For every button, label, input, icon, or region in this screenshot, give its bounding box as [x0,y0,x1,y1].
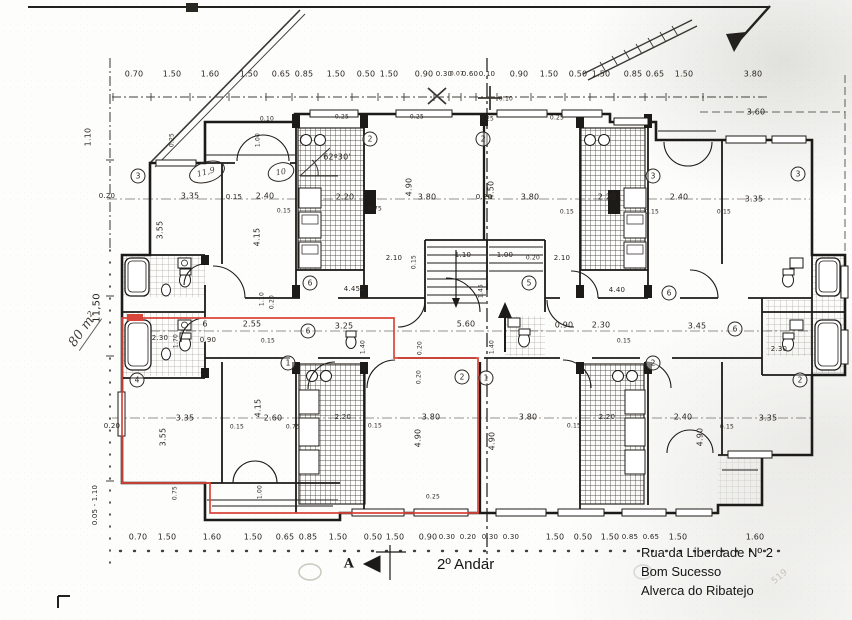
room-area-note: 10 [275,167,287,178]
dimension-label: 0.75 [286,424,300,431]
dimension-label: 1.50 [675,70,694,79]
dimension-label: 0.20 [104,422,120,430]
room-number-1: 1 [479,371,494,386]
dimension-label: 0.25 [335,114,349,121]
dimension-label: 0.20 [460,533,476,541]
dimension-label: 0.25 [550,115,564,122]
dimension-label: 3.35 [759,414,778,423]
dimension-label: 0.15 [560,209,574,216]
dimension-label: 6 [202,320,207,329]
room-number-3: 3 [791,167,806,182]
dimension-label: 0.20 [416,370,423,384]
dimension-label: 0.65 [272,70,291,79]
dimension-label: 1.45 [478,284,485,298]
dimension-label: 0.50 [357,70,376,79]
dimension-label: 0.30 [503,533,519,541]
dimension-label: 1.60 [201,70,220,79]
dimension-label: 0.20 [417,341,424,355]
dimension-label: 2.20 [335,413,351,421]
dimension-label: 0.10 [260,116,274,123]
room-number-2: 2 [646,356,661,371]
dimension-label: 0.60 [462,70,478,78]
dimension-label: 5.60 [457,320,476,329]
dimension-label: 1.50 [244,533,263,542]
dimension-label: 0.15 [411,255,418,269]
dimension-label: 0.50 [364,533,383,542]
dimension-label: 0.15 [230,424,244,431]
dimension-label: 2.30 [152,334,168,342]
dimension-label: 1.10 [455,251,471,259]
dimension-label: 2.10 [554,254,570,262]
room-number-6: 6 [662,286,677,301]
dimension-label: 0.15 [226,193,242,201]
dimension-label: 62º30' [323,153,351,162]
dimension-label: 3.35 [745,195,764,204]
dimension-label: 1.60 [203,533,222,542]
dimension-label: 0.15 [617,338,631,345]
address-block: Rua da Liberdade Nº 2 Bom Sucesso Alverc… [641,544,773,601]
dimension-label: 2.20 [336,193,355,202]
dimension-label: 0.65 [646,70,665,79]
dimension-label: 1.10 [84,128,93,147]
room-number-4: 4 [130,373,145,388]
dimension-label: 1.50 [158,533,177,542]
dimension-label: 0.10 [499,96,513,103]
dimension-label: 4.15 [254,399,263,418]
dimension-label: 4.90 [488,432,497,451]
dimension-label: 2.20 [599,413,615,421]
dimension-label: 0.85 [624,70,643,79]
dimension-label: 0.90 [419,533,438,542]
dimension-label: 0.20 [526,255,540,262]
dimension-label: 0.90 [555,321,574,330]
dimension-label: 2.30 [771,345,787,353]
dimension-label: 0.85 [295,70,314,79]
area-note: 80 m² [66,309,102,351]
room-number-5: 5 [522,276,537,291]
dimension-label: 3.35 [176,414,195,423]
room-number-3: 3 [646,169,661,184]
dimension-label: 3.45 [688,322,707,331]
dimension-label: 0.85 [622,533,638,541]
dimension-label: 0.90 [510,70,529,79]
room-number-6: 6 [303,276,318,291]
dimension-label: 3.25 [335,322,354,331]
dimension-label: 2.20 [598,193,617,202]
dimension-label: 0.15 [368,423,382,430]
dimension-label: 3.80 [418,193,437,202]
dimension-label: 3.80 [422,413,441,422]
dimension-label: 4.90 [696,428,705,447]
floor-plan-scan: 0.701.501.601.500.650.851.500.501.500.90… [0,0,852,620]
dimension-label: 0.15 [567,423,581,430]
room-area-note: 11,9 [196,165,216,179]
dimension-label: 0.25 [480,116,494,123]
dimension-label: 0.10 [479,70,495,78]
dimension-label: 3.55 [159,428,168,447]
dimension-label: 0.15 [720,424,734,431]
dimension-label: 0.50 [569,70,588,79]
annotation-layer: 0.701.501.601.500.650.851.500.501.500.90… [0,0,852,620]
dimension-label: 3.60 [747,108,766,117]
dimension-label: 0.15 [717,209,731,216]
dimension-label: 4.50 [487,181,496,200]
dimension-label: 0.85 [299,533,318,542]
dimension-label: 1.50 [546,533,565,542]
room-number-2: 2 [363,132,378,147]
dimension-label: 4.45 [344,285,360,293]
dimension-label: 2.55 [243,320,262,329]
dimension-label: 0.75 [368,206,382,213]
floor-title: 2º Andar [437,556,494,573]
dimension-label: 3.80 [521,193,540,202]
dimension-label: 0.05 - 1.10 [91,485,99,525]
dimension-label: 4.40 [609,286,625,294]
dimension-label: 0.30 [482,533,498,541]
dimension-label: 2.40 [256,192,275,201]
dimension-label: 0.90 [415,70,434,79]
dimension-label: 1.00 [257,485,264,499]
dimension-label: 2.10 [386,254,402,262]
room-number-1: 1 [281,356,296,371]
dimension-label: 0.70 [129,533,148,542]
dimension-label: 0.25 [410,114,424,121]
dimension-label: 3.80 [519,413,538,422]
dimension-label: 3.80 [744,70,763,79]
dimension-label: 1.00 [497,251,513,259]
dimension-label: 3.55 [156,221,165,240]
dimension-label: 0.65 [276,533,295,542]
room-number-3: 3 [131,169,146,184]
dimension-label: 2.40 [670,193,689,202]
pencil-note: 519 [770,567,790,586]
dimension-label: 2.30 [592,321,611,330]
dimension-label: 4.15 [253,228,262,247]
dimension-label: 0.90 [200,336,216,344]
room-number-6: 6 [728,322,743,337]
dimension-label: 0.75 [172,486,179,500]
address-line: Rua da Liberdade Nº 2 [641,544,773,563]
dimension-label: 1.60 [746,533,765,542]
dimension-label: 1.45 [360,284,367,298]
room-number-2: 2 [455,370,470,385]
dimension-label: 0.25 [169,133,176,147]
dimension-label: 0.70 [125,70,144,79]
dimension-label: 1.10 [259,292,266,306]
dimension-label: 1.50 [327,70,346,79]
dimension-label: 1.50 [163,70,182,79]
dimension-label: 0.15 [645,209,659,216]
dimension-label: 1.40 [360,340,367,354]
address-line: Bom Sucesso [641,563,773,582]
dimension-label: 2.60 [264,414,283,423]
dimension-label: 1.50 [540,70,559,79]
dimension-label: 1.50 [669,533,688,542]
dimension-label: 4.90 [405,178,414,197]
section-marker: A [344,557,354,572]
dimension-label: 1.50 [592,70,611,79]
dimension-label: 1.50 [601,533,620,542]
dimension-label: 4.90 [414,429,423,448]
address-line: Alverca do Ribatejo [641,582,773,601]
dimension-label: 0.30 [439,533,455,541]
dimension-label: 1.50 [386,533,405,542]
dimension-label: 2.40 [674,413,693,422]
dimension-label: 0.15 [277,208,291,215]
dimension-label: 0.50 [574,533,593,542]
dimension-label: 1.00 [255,133,262,147]
dimension-label: 1.70 [173,334,180,348]
dimension-label: 1.50 [380,70,399,79]
dimension-label: 0.15 [261,338,275,345]
room-number-2: 2 [476,132,491,147]
dimension-label: 1.40 [489,340,496,354]
dimension-label: 0.20 [99,192,115,200]
room-number-2: 2 [793,373,808,388]
dimension-label: 0.20 [269,295,276,309]
dimension-label: 3.35 [181,192,200,201]
room-number-6: 6 [301,324,316,339]
dimension-label: 1.50 [329,533,348,542]
dimension-label: 1.50 [240,70,259,79]
dimension-label: 0.25 [426,494,440,501]
dimension-label: 0.65 [643,533,659,541]
